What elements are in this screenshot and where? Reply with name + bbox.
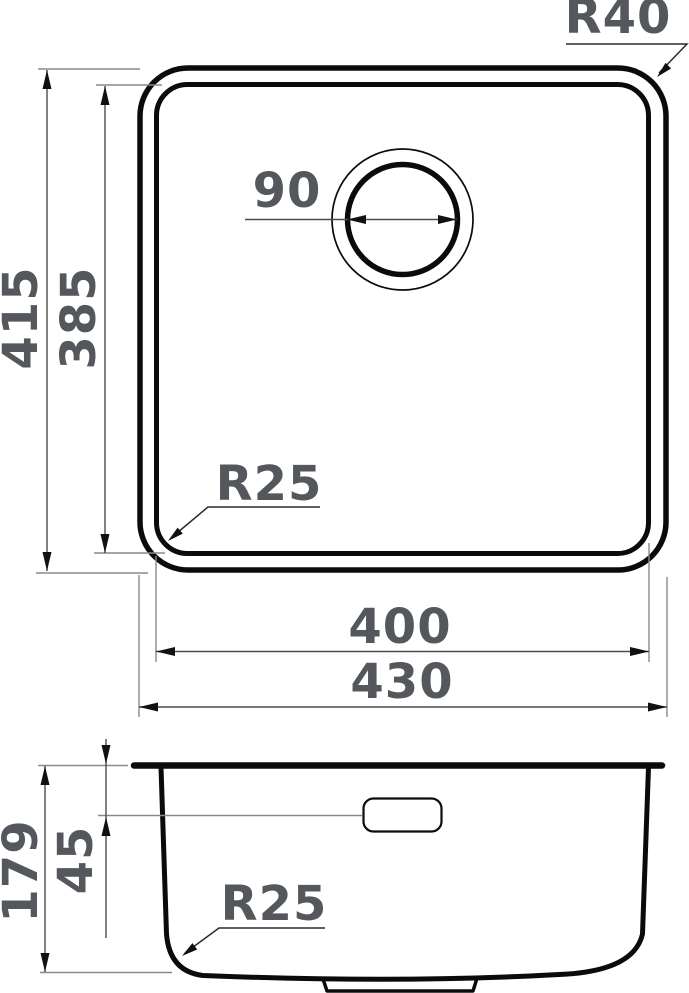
- arrowhead-up-icon: [41, 766, 50, 785]
- top-view: 415 385 90 R40 R25: [0, 0, 687, 717]
- dim-inner-height-label: 385: [51, 266, 107, 369]
- arrowhead-right-icon: [438, 215, 457, 224]
- arrowhead-right-icon: [630, 647, 649, 656]
- arrowhead-down-icon: [102, 745, 111, 764]
- arrowhead-left-icon: [156, 647, 175, 656]
- dim-total-depth: 179: [0, 766, 50, 972]
- dim-total-depth-label: 179: [0, 819, 49, 922]
- dim-outer-height-label: 415: [0, 266, 49, 369]
- arrowhead-right-icon: [648, 703, 667, 712]
- dim-inner-width-label: 400: [348, 599, 451, 655]
- sink-technical-drawing: 415 385 90 R40 R25: [0, 0, 689, 993]
- overflow-hole-outline: [364, 799, 442, 832]
- arrowhead-down-icon: [41, 953, 50, 972]
- arrowhead-diagonal-icon: [657, 63, 671, 77]
- callout-bottom-radius-label: R25: [221, 876, 328, 932]
- arrowhead-up-icon: [101, 86, 110, 105]
- dim-overflow-depth-label: 45: [48, 826, 104, 895]
- arrowhead-up-icon: [43, 70, 52, 89]
- dim-outer-width-label: 430: [350, 654, 453, 710]
- dim-outer-height: 415: [0, 70, 52, 571]
- dim-inner-height: 385: [51, 86, 110, 553]
- arrowhead-down-icon: [101, 534, 110, 553]
- arrowhead-left-icon: [139, 703, 158, 712]
- dim-drain-diameter-label: 90: [253, 163, 322, 219]
- dim-inner-width: 400: [156, 599, 649, 656]
- dim-outer-width: 430: [139, 654, 667, 712]
- arrowhead-down-icon: [43, 552, 52, 571]
- drawing-sheet: 415 385 90 R40 R25: [0, 0, 689, 993]
- callout-inner-corner-radius: R25: [168, 456, 322, 541]
- callout-outer-radius-label: R40: [565, 0, 672, 45]
- callout-inner-radius-label: R25: [216, 456, 323, 512]
- side-view: 179 45 R25: [0, 739, 662, 991]
- dim-overflow-depth: 45: [48, 739, 111, 938]
- callout-bottom-corner-radius: R25: [182, 876, 327, 956]
